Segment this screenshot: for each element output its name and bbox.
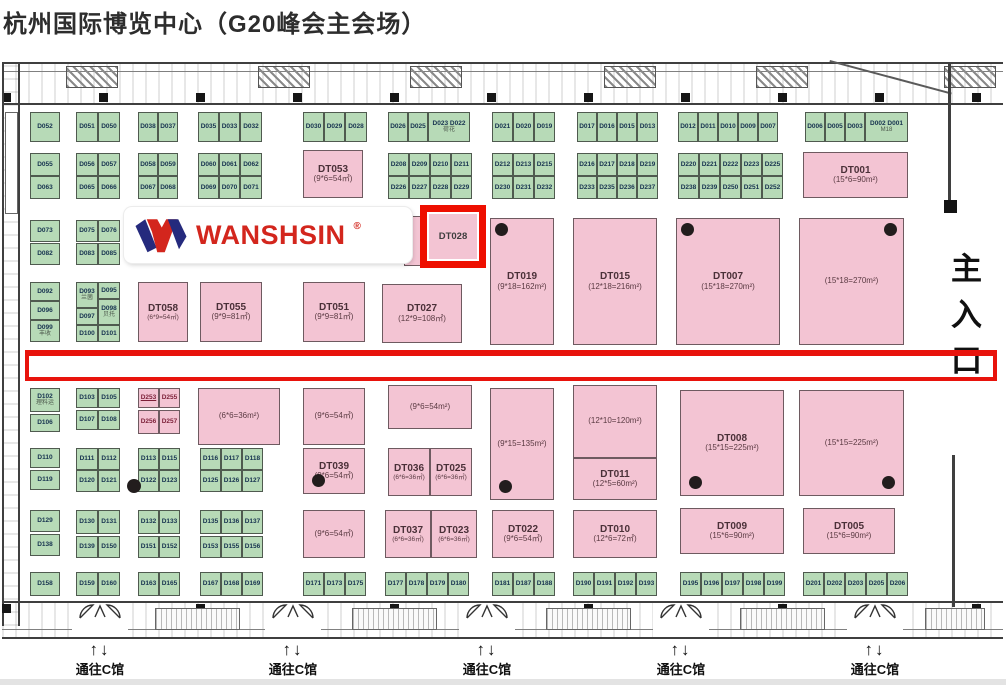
booth-id: D206 bbox=[890, 580, 906, 587]
booth-id: D216 bbox=[579, 161, 595, 168]
gate-label: 通往C馆 bbox=[835, 659, 915, 678]
booth-id: D013 bbox=[640, 123, 656, 130]
column-dot-icon bbox=[312, 474, 325, 487]
booth-d066: D066 bbox=[98, 176, 120, 199]
booth-id: D237 bbox=[640, 184, 656, 191]
booth-id: D017 bbox=[579, 123, 595, 130]
booth-id: D057 bbox=[101, 161, 117, 168]
booth-id: D050 bbox=[101, 123, 117, 130]
booth-d105: D105 bbox=[98, 388, 120, 408]
door-icon bbox=[853, 603, 897, 619]
booth-id: D153 bbox=[203, 543, 219, 550]
booth-d196: D196 bbox=[701, 572, 722, 596]
wall-room bbox=[740, 608, 825, 630]
booth-d125: D125 bbox=[200, 470, 221, 492]
booth-dt022: DT022(9*6=54㎡) bbox=[492, 510, 554, 558]
booth-d121: D121 bbox=[98, 470, 120, 492]
booth-d173: D173 bbox=[324, 572, 345, 596]
booth-id: D067 bbox=[140, 184, 156, 191]
booth-size: (15*6=90m²) bbox=[710, 532, 755, 541]
booth-size: (15*18=270m²) bbox=[701, 283, 755, 292]
booth-id: D030 bbox=[306, 123, 322, 130]
booth-d019: D019 bbox=[534, 112, 555, 142]
booth-d073: D073 bbox=[30, 220, 60, 242]
highlight-band bbox=[25, 350, 997, 381]
booth-id: D052 bbox=[37, 123, 53, 130]
booth-d020: D020 bbox=[513, 112, 534, 142]
booth-id: D029 bbox=[327, 123, 343, 130]
booth-d256: D256 bbox=[138, 410, 159, 434]
booth-d177: D177 bbox=[385, 572, 406, 596]
booth-d002-d001: D002 D001M18 bbox=[865, 112, 908, 142]
booth-dt055: DT055(9*9=81㎡) bbox=[200, 282, 262, 342]
gate-arrows-icon: ↑↓ bbox=[653, 640, 709, 660]
booth-id: D219 bbox=[640, 161, 656, 168]
booth-size: (9*6=54㎡) bbox=[504, 535, 543, 544]
gate-label: 通往C馆 bbox=[641, 659, 721, 678]
booth-id: D138 bbox=[37, 541, 53, 548]
booth-id: D127 bbox=[245, 477, 261, 484]
booth-dt010: DT010(12*6=72㎡) bbox=[573, 510, 657, 558]
booth-id: D167 bbox=[203, 580, 219, 587]
booth-id: D131 bbox=[101, 518, 117, 525]
booth-id: D202 bbox=[827, 580, 843, 587]
booth-dt027: DT027(12*9=108㎡) bbox=[382, 284, 462, 343]
booth-subtext: 兰菌 bbox=[81, 295, 93, 302]
booth-id: D130 bbox=[79, 518, 95, 525]
booth-id: D133 bbox=[162, 518, 178, 525]
column-dot-icon bbox=[882, 476, 895, 489]
booth-d120: D120 bbox=[76, 470, 98, 492]
booth-size: (9*6=54㎡) bbox=[315, 412, 354, 421]
booth-id: D251 bbox=[744, 184, 760, 191]
booth-size: (15*18=270m²) bbox=[825, 277, 879, 286]
door-icon bbox=[659, 603, 703, 619]
booth-d218: D218 bbox=[617, 153, 637, 176]
booth-dt051: DT051(9*9=81㎡) bbox=[303, 282, 365, 342]
booth-id: D066 bbox=[101, 184, 117, 191]
booth-id: D218 bbox=[619, 161, 635, 168]
booth-d110: D110 bbox=[30, 448, 60, 468]
booth-d103: D103 bbox=[76, 388, 98, 408]
booth-id: D223 bbox=[744, 161, 760, 168]
booth-id: DT027 bbox=[407, 303, 437, 314]
booth-id: D108 bbox=[101, 416, 117, 423]
booth-d032: D032 bbox=[240, 112, 262, 142]
booth-d209: D209 bbox=[409, 153, 430, 176]
booth-d171: D171 bbox=[303, 572, 324, 596]
booth-dt019: DT019(9*18=162m²) bbox=[490, 218, 554, 345]
booth-d062: D062 bbox=[240, 153, 262, 176]
wanshsin-logo-text: WANSHSIN bbox=[196, 220, 346, 251]
booth-d070: D070 bbox=[219, 176, 240, 199]
booth-d135: D135 bbox=[200, 510, 221, 534]
booth-9-6-54: (9*6=54㎡) bbox=[303, 510, 365, 558]
booth-d156: D156 bbox=[242, 536, 263, 558]
gate-arrows-icon: ↑↓ bbox=[847, 640, 903, 660]
booth-id: D106 bbox=[37, 419, 53, 426]
booth-dt036: DT036(6*6=36㎡) bbox=[388, 448, 430, 496]
door-icon bbox=[465, 603, 509, 619]
booth-d028: D028 bbox=[345, 112, 367, 142]
booth-id: D236 bbox=[619, 184, 635, 191]
booth-d119: D119 bbox=[30, 470, 60, 490]
booth-size: (6*6=36㎡) bbox=[393, 474, 425, 481]
booth-id: DT025 bbox=[436, 463, 466, 474]
page-title: 杭州国际博览中心（G20峰会主会场） bbox=[3, 4, 426, 39]
booth-d102: D102理料运 bbox=[30, 388, 60, 412]
booth-id: D239 bbox=[702, 184, 718, 191]
booth-id: D178 bbox=[409, 580, 425, 587]
booth-id: D160 bbox=[101, 580, 117, 587]
booth-id: D163 bbox=[141, 580, 157, 587]
booth-d085: D085 bbox=[98, 243, 120, 265]
booth-d057: D057 bbox=[98, 153, 120, 176]
booth-id: D175 bbox=[348, 580, 364, 587]
booth-id: D100 bbox=[79, 330, 95, 337]
booth-d217: D217 bbox=[597, 153, 617, 176]
booth-d033: D033 bbox=[219, 112, 240, 142]
booth-id: D076 bbox=[101, 227, 117, 234]
booth-d038: D038 bbox=[138, 112, 158, 142]
booth-d178: D178 bbox=[406, 572, 427, 596]
gate-label: 通往C馆 bbox=[60, 659, 140, 678]
booth-d106: D106 bbox=[30, 414, 60, 432]
booth-d058: D058 bbox=[138, 153, 158, 176]
booth-d025: D025 bbox=[408, 112, 428, 142]
booth-id: D255 bbox=[162, 394, 178, 401]
booth-id: D197 bbox=[725, 580, 741, 587]
booth-id: D112 bbox=[101, 455, 116, 462]
booth-size: (6*9=54㎡) bbox=[147, 314, 179, 321]
booth-d068: D068 bbox=[158, 176, 178, 199]
booth-id: D257 bbox=[162, 418, 178, 425]
booth-id: D083 bbox=[79, 250, 95, 257]
booth-d226: D226 bbox=[388, 176, 409, 199]
booth-d250: D250 bbox=[720, 176, 741, 199]
booth-subtext: 理料运 bbox=[36, 400, 54, 407]
booth-d023-d022: D023 D022荷花 bbox=[428, 112, 470, 142]
booth-id: D179 bbox=[430, 580, 446, 587]
bottom-edge-bar bbox=[0, 679, 1006, 685]
booth-d169: D169 bbox=[242, 572, 263, 596]
wall-right-upper bbox=[948, 62, 951, 208]
booth-d096: D096 bbox=[30, 301, 60, 320]
booth-id: D037 bbox=[160, 123, 176, 130]
booth-d115: D115 bbox=[159, 448, 180, 470]
booth-id: D070 bbox=[222, 184, 238, 191]
booth-d050: D050 bbox=[98, 112, 120, 142]
booth-size: (6*6=36㎡) bbox=[435, 474, 467, 481]
booth-dt053: DT053(9*6=54㎡) bbox=[303, 150, 363, 198]
booth-size: (9*6=54m²) bbox=[410, 403, 450, 412]
booth-d160: D160 bbox=[98, 572, 120, 596]
booth-dt037: DT037(6*6=36㎡) bbox=[385, 510, 431, 558]
booth-d206: D206 bbox=[887, 572, 908, 596]
booth-d118: D118 bbox=[242, 448, 263, 470]
booth-id: D016 bbox=[599, 123, 615, 130]
booth-size: (15*15=225m²) bbox=[705, 444, 759, 453]
booth-d069: D069 bbox=[198, 176, 219, 199]
booth-size: (9*9=81㎡) bbox=[212, 313, 251, 322]
booth-d153: D153 bbox=[200, 536, 221, 558]
booth-size: (15*15=225m²) bbox=[825, 439, 879, 448]
booth-d167: D167 bbox=[200, 572, 221, 596]
booth-d223: D223 bbox=[741, 153, 762, 176]
booth-size: (9*15=135m²) bbox=[497, 440, 546, 449]
booth-id: D188 bbox=[537, 580, 553, 587]
booth-d215: D215 bbox=[534, 153, 555, 176]
booth-size: (9*6=54㎡) bbox=[315, 530, 354, 539]
booth-d063: D063 bbox=[30, 176, 60, 199]
wall-hatch bbox=[258, 66, 310, 88]
booth-id: D015 bbox=[619, 123, 635, 130]
gate-label: 通往C馆 bbox=[253, 659, 333, 678]
booth-id: D122 bbox=[141, 477, 157, 484]
booth-d138: D138 bbox=[30, 534, 60, 556]
booth-dt015: DT015(12*18=216m²) bbox=[573, 218, 657, 345]
booth-id: D191 bbox=[597, 580, 613, 587]
booth-d213: D213 bbox=[513, 153, 534, 176]
booth-size: (12*18=216m²) bbox=[588, 283, 642, 292]
booth-id: D092 bbox=[37, 288, 53, 295]
booth-d059: D059 bbox=[158, 153, 178, 176]
booth-id: D068 bbox=[160, 184, 176, 191]
booth-id: D121 bbox=[101, 477, 117, 484]
booth-d232: D232 bbox=[534, 176, 555, 199]
booth-d180: D180 bbox=[448, 572, 469, 596]
booth-d013: D013 bbox=[637, 112, 658, 142]
booth-size: (12*10=120m²) bbox=[588, 417, 642, 426]
column-dot-icon bbox=[127, 479, 141, 493]
column-dot-icon bbox=[689, 476, 702, 489]
booth-id: D051 bbox=[79, 123, 95, 130]
booth-id: D221 bbox=[702, 161, 718, 168]
booth-d132: D132 bbox=[138, 510, 159, 534]
booth-d098: D098贝托 bbox=[98, 299, 120, 325]
booth-size: (15*6=90m²) bbox=[833, 176, 878, 185]
booth-d009: D009 bbox=[738, 112, 758, 142]
booth-d021: D021 bbox=[492, 112, 513, 142]
booth-d026: D026 bbox=[388, 112, 408, 142]
booth-id: D069 bbox=[201, 184, 217, 191]
booth-d151: D151 bbox=[138, 536, 159, 558]
gate-opening bbox=[653, 603, 709, 637]
booth-d195: D195 bbox=[680, 572, 701, 596]
booth-d198: D198 bbox=[743, 572, 764, 596]
booth-d158: D158 bbox=[30, 572, 60, 596]
booth-id: D169 bbox=[245, 580, 261, 587]
booth-dt007: DT007(15*18=270m²) bbox=[676, 218, 780, 345]
wall-column bbox=[944, 200, 957, 213]
booth-d216: D216 bbox=[577, 153, 597, 176]
booth-d165: D165 bbox=[159, 572, 180, 596]
booth-d220: D220 bbox=[678, 153, 699, 176]
booth-id: D230 bbox=[495, 184, 511, 191]
booth-id: D071 bbox=[243, 184, 259, 191]
booth-id: DT036 bbox=[394, 463, 424, 474]
booth-id: D208 bbox=[391, 161, 407, 168]
booth-id: D213 bbox=[516, 161, 532, 168]
booth-id: D181 bbox=[495, 580, 511, 587]
booth-d252: D252 bbox=[762, 176, 783, 199]
booth-d201: D201 bbox=[803, 572, 824, 596]
booth-id: D120 bbox=[79, 477, 95, 484]
booth-id: D005 bbox=[827, 123, 843, 130]
booth-d230: D230 bbox=[492, 176, 513, 199]
booth-d015: D015 bbox=[617, 112, 637, 142]
booth-d095: D095 bbox=[98, 282, 120, 299]
booth-id: D011 bbox=[700, 123, 715, 130]
booth-d003: D003 bbox=[845, 112, 865, 142]
booth-id: D225 bbox=[765, 161, 781, 168]
booth-d202: D202 bbox=[824, 572, 845, 596]
booth-dt028: DT028 bbox=[429, 214, 477, 259]
booth-d061: D061 bbox=[219, 153, 240, 176]
booth-id: D195 bbox=[683, 580, 699, 587]
wall-hatch bbox=[66, 66, 118, 88]
booth-size: (9*18=162m²) bbox=[497, 283, 546, 292]
booth-id: D063 bbox=[37, 184, 53, 191]
booth-d237: D237 bbox=[637, 176, 658, 199]
wall-hatch bbox=[944, 66, 996, 88]
booth-d100: D100 bbox=[76, 325, 98, 342]
booth-subtext: 贝托 bbox=[103, 312, 115, 319]
booth-d055: D055 bbox=[30, 153, 60, 176]
booth-d129: D129 bbox=[30, 510, 60, 532]
booth-id: D155 bbox=[224, 543, 240, 550]
booth-id: D180 bbox=[451, 580, 467, 587]
booth-d199: D199 bbox=[764, 572, 785, 596]
booth-size: (6*6=36㎡) bbox=[392, 536, 424, 543]
gate-arrows-icon: ↑↓ bbox=[459, 640, 515, 660]
booth-size: (9*9=81㎡) bbox=[315, 313, 354, 322]
booth-id: D007 bbox=[760, 123, 776, 130]
booth-d251: D251 bbox=[741, 176, 762, 199]
booth-12-10-120m: (12*10=120m²) bbox=[573, 385, 657, 458]
booth-id: D150 bbox=[101, 543, 117, 550]
booth-id: D205 bbox=[869, 580, 885, 587]
booth-d093: D093兰菌 bbox=[76, 282, 98, 308]
booth-id: D059 bbox=[160, 161, 176, 168]
booth-d117: D117 bbox=[221, 448, 242, 470]
booth-d112: D112 bbox=[98, 448, 120, 470]
booth-dt011: DT011(12*5=60m²) bbox=[573, 458, 657, 500]
booth-id: D060 bbox=[201, 161, 217, 168]
booth-id: D025 bbox=[410, 123, 426, 130]
booth-d029: D029 bbox=[324, 112, 345, 142]
booth-d253: D253 bbox=[138, 388, 159, 408]
wall-right-lower bbox=[952, 455, 955, 607]
booth-d083: D083 bbox=[76, 243, 98, 265]
booth-id: D199 bbox=[767, 580, 783, 587]
column-dot-icon bbox=[884, 223, 897, 236]
booth-d175: D175 bbox=[345, 572, 366, 596]
booth-d257: D257 bbox=[159, 410, 180, 434]
booth-d225: D225 bbox=[762, 153, 783, 176]
booth-d097: D097 bbox=[76, 308, 98, 325]
gate-opening bbox=[459, 603, 515, 637]
booth-id: D235 bbox=[599, 184, 615, 191]
booth-d235: D235 bbox=[597, 176, 617, 199]
booth-id: D256 bbox=[141, 418, 157, 425]
booth-id: D021 bbox=[495, 123, 511, 130]
booth-size: (12*9=108㎡) bbox=[398, 315, 446, 324]
booth-id: D126 bbox=[224, 477, 240, 484]
wall-room bbox=[155, 608, 240, 630]
booth-d187: D187 bbox=[513, 572, 534, 596]
booth-9-6-54: (9*6=54㎡) bbox=[303, 388, 365, 445]
booth-id: D006 bbox=[807, 123, 823, 130]
booth-d108: D108 bbox=[98, 410, 120, 430]
booth-id: D250 bbox=[723, 184, 739, 191]
booth-d056: D056 bbox=[76, 153, 98, 176]
booth-dt008: DT008(15*15=225m²) bbox=[680, 390, 784, 496]
booth-id: D082 bbox=[37, 250, 53, 257]
booth-d101: D101 bbox=[98, 325, 120, 342]
booth-d060: D060 bbox=[198, 153, 219, 176]
booth-d212: D212 bbox=[492, 153, 513, 176]
booth-d037: D037 bbox=[158, 112, 178, 142]
booth-id: D137 bbox=[245, 518, 261, 525]
booth-id: D226 bbox=[391, 184, 407, 191]
booth-id: D028 bbox=[348, 123, 364, 130]
booth-id: D123 bbox=[162, 477, 178, 484]
booth-d099: D099丰收 bbox=[30, 320, 60, 342]
booth-id: D190 bbox=[576, 580, 592, 587]
booth-id: D062 bbox=[243, 161, 259, 168]
booth-id: D035 bbox=[201, 123, 217, 130]
booth-id: D002 D001 bbox=[870, 120, 903, 127]
booth-id: D033 bbox=[222, 123, 238, 130]
booth-d076: D076 bbox=[98, 220, 120, 242]
booth-d122: D122 bbox=[138, 470, 159, 492]
booth-id: D152 bbox=[162, 543, 178, 550]
booth-id: D253 bbox=[141, 394, 157, 401]
wall-room bbox=[546, 608, 631, 630]
booth-d231: D231 bbox=[513, 176, 534, 199]
booth-id: D113 bbox=[141, 455, 156, 462]
booth-d131: D131 bbox=[98, 510, 120, 534]
booth-d190: D190 bbox=[573, 572, 594, 596]
booth-dt005: DT005(15*6=90m²) bbox=[803, 508, 895, 554]
gate-arrows-icon: ↑↓ bbox=[72, 640, 128, 660]
booth-d228: D228 bbox=[430, 176, 451, 199]
booth-d179: D179 bbox=[427, 572, 448, 596]
booth-d137: D137 bbox=[242, 510, 263, 534]
booth-id: DT019 bbox=[507, 271, 537, 282]
highlight-box-dt028: DT028 bbox=[420, 205, 486, 268]
booth-id: D117 bbox=[224, 455, 239, 462]
booth-id: D032 bbox=[243, 123, 259, 130]
booth-id: D220 bbox=[681, 161, 697, 168]
booth-d203: D203 bbox=[845, 572, 866, 596]
booth-id: D192 bbox=[618, 580, 634, 587]
booth-d219: D219 bbox=[637, 153, 658, 176]
booth-id: D101 bbox=[101, 330, 117, 337]
booth-id: D055 bbox=[37, 161, 53, 168]
booth-d155: D155 bbox=[221, 536, 242, 558]
booth-id: D110 bbox=[37, 454, 52, 461]
booth-id: D095 bbox=[101, 287, 117, 294]
booth-id: D151 bbox=[141, 543, 157, 550]
booth-id: D012 bbox=[680, 123, 696, 130]
gate-opening bbox=[847, 603, 903, 637]
booth-id: D096 bbox=[37, 307, 53, 314]
booth-d006: D006 bbox=[805, 112, 825, 142]
booth-id: D073 bbox=[37, 227, 53, 234]
booth-15-15-225m: (15*15=225m²) bbox=[799, 390, 904, 496]
